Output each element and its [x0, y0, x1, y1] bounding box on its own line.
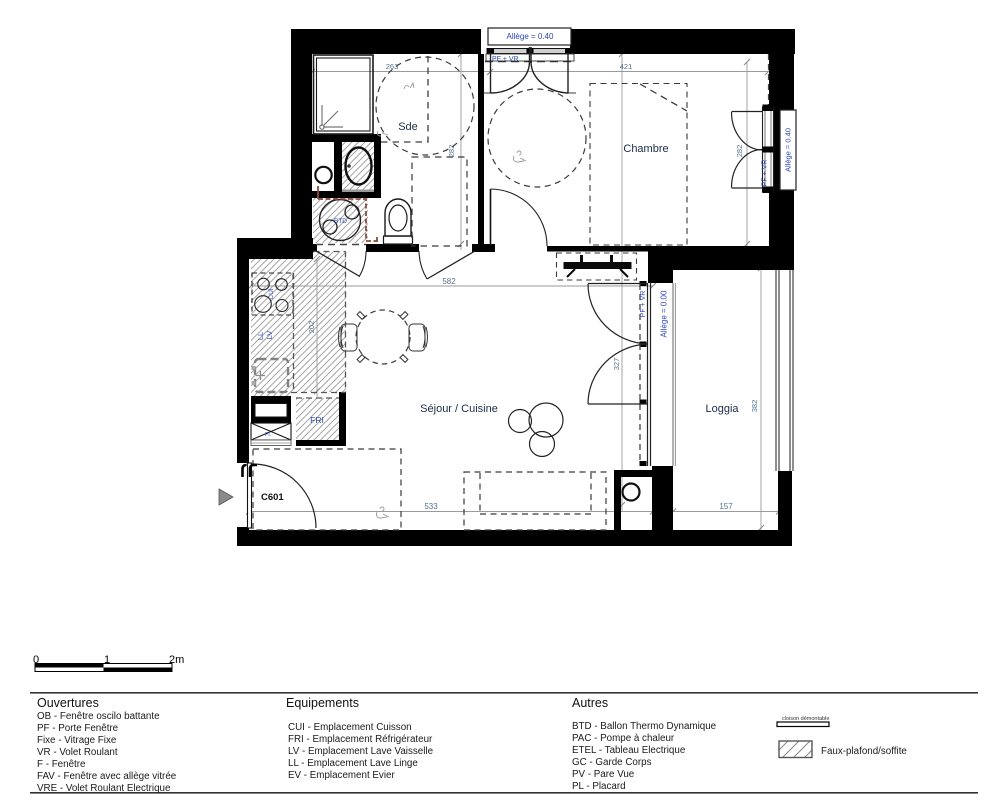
- svg-text:PAC - Pompe à chaleur: PAC - Pompe à chaleur: [572, 733, 675, 744]
- svg-text:LL: LL: [256, 332, 265, 340]
- svg-text:BTD - Ballon Thermo Dynamique: BTD - Ballon Thermo Dynamique: [572, 721, 717, 732]
- svg-text:Allège = 0.00: Allège = 0.00: [660, 290, 669, 337]
- svg-text:Chambre: Chambre: [623, 143, 668, 155]
- svg-text:Séjour / Cuisine: Séjour / Cuisine: [420, 403, 498, 415]
- svg-text:PF + VR: PF + VR: [640, 291, 647, 318]
- svg-text:282: 282: [447, 145, 456, 158]
- svg-text:Allège = 0.40: Allège = 0.40: [507, 32, 554, 41]
- svg-text:PV - Pare Vue: PV - Pare Vue: [572, 769, 635, 780]
- svg-text:533: 533: [424, 502, 438, 511]
- svg-text:157: 157: [719, 502, 733, 511]
- svg-text:Autres: Autres: [572, 696, 608, 710]
- svg-text:PF + VR: PF + VR: [762, 160, 769, 187]
- svg-text:LL - Emplacement Lave Linge: LL - Emplacement Lave Linge: [288, 758, 418, 769]
- svg-text:582: 582: [442, 277, 456, 286]
- svg-text:Allège = 0.40: Allège = 0.40: [784, 128, 793, 172]
- svg-text:VRE - Volet Roulant Electrique: VRE - Volet Roulant Electrique: [37, 783, 171, 794]
- svg-text:PL: PL: [265, 432, 271, 438]
- svg-text:382: 382: [750, 400, 759, 413]
- svg-text:PF - Porte Fenêtre: PF - Porte Fenêtre: [37, 723, 119, 734]
- svg-text:Fixe - Vitrage Fixe: Fixe - Vitrage Fixe: [37, 735, 117, 746]
- svg-text:Sde: Sde: [398, 121, 418, 133]
- svg-text:LV: LV: [265, 331, 274, 340]
- svg-text:PF + VR: PF + VR: [492, 56, 519, 63]
- svg-text:C601: C601: [261, 492, 284, 503]
- svg-text:FRI - Emplacement Réfrigérateu: FRI - Emplacement Réfrigérateur: [288, 734, 433, 745]
- svg-text:FRI: FRI: [310, 415, 324, 425]
- svg-text:EV - Emplacement Evier: EV - Emplacement Evier: [288, 770, 395, 781]
- svg-text:327: 327: [612, 358, 621, 371]
- svg-text:FAV - Fenêtre avec allège vitr: FAV - Fenêtre avec allège vitrée: [37, 771, 177, 782]
- svg-text:Loggia: Loggia: [705, 403, 739, 415]
- svg-text:Equipements: Equipements: [286, 696, 359, 710]
- svg-text:CUI - Emplacement Cuisson: CUI - Emplacement Cuisson: [288, 722, 412, 733]
- svg-text:202: 202: [307, 321, 316, 334]
- svg-text:CUI: CUI: [268, 288, 275, 299]
- svg-text:cloison démontable: cloison démontable: [782, 716, 829, 722]
- svg-text:F - Fenêtre: F - Fenêtre: [37, 759, 86, 770]
- svg-text:ETEL - Tableau Electrique: ETEL - Tableau Electrique: [572, 745, 686, 756]
- svg-text:GC - Garde Corps: GC - Garde Corps: [572, 757, 652, 768]
- svg-text:BTD: BTD: [334, 218, 347, 225]
- svg-text:Faux-plafond/soffite: Faux-plafond/soffite: [821, 746, 907, 757]
- svg-text:LV - Emplacement Lave Vaissell: LV - Emplacement Lave Vaisselle: [288, 746, 434, 757]
- svg-text:421: 421: [620, 62, 633, 71]
- svg-text:VR - Volet Roulant: VR - Volet Roulant: [37, 747, 118, 758]
- svg-text:282: 282: [735, 145, 744, 158]
- svg-text:OB - Fenêtre oscilo battante: OB - Fenêtre oscilo battante: [37, 711, 160, 722]
- svg-text:PL - Placard: PL - Placard: [572, 781, 626, 792]
- svg-text:Ouvertures: Ouvertures: [37, 696, 99, 710]
